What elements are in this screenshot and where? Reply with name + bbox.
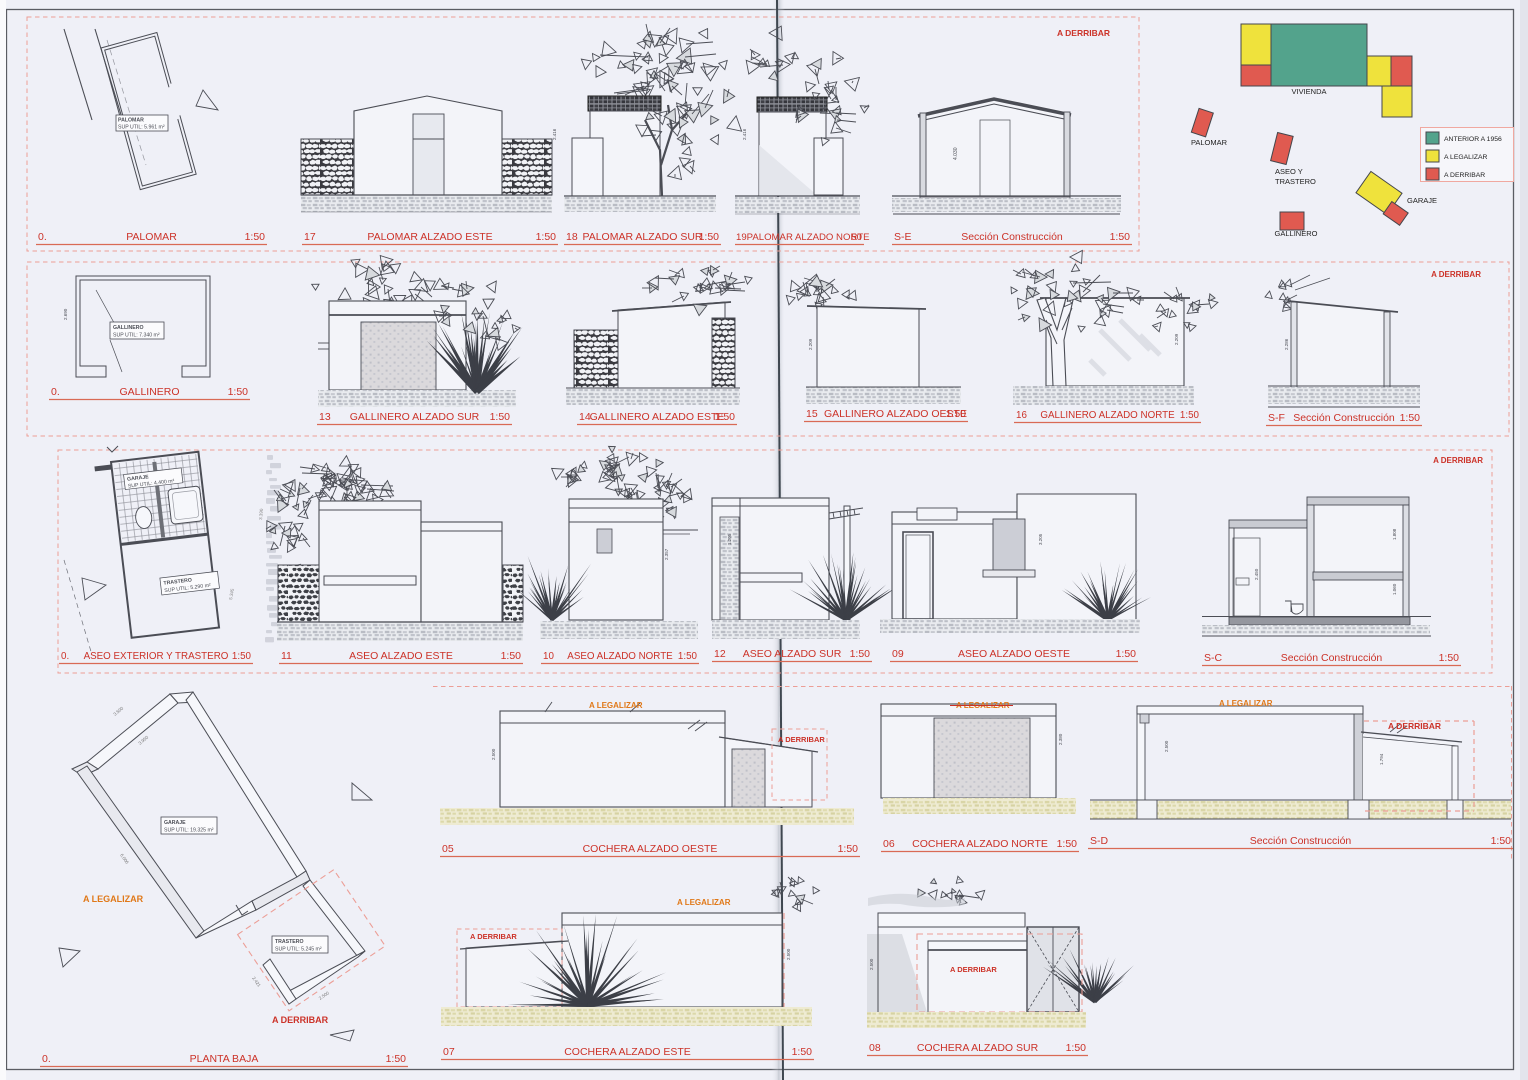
svg-text:12: 12 <box>714 648 726 660</box>
svg-text:COCHERA ALZADO OESTE: COCHERA ALZADO OESTE <box>583 843 718 855</box>
svg-text:GALLINERO ALZADO NORTE: GALLINERO ALZADO NORTE <box>1040 410 1175 421</box>
svg-text:07: 07 <box>443 1046 455 1058</box>
svg-text:1:50: 1:50 <box>946 408 967 420</box>
svg-text:15: 15 <box>806 408 818 420</box>
svg-text:A DERRIBAR: A DERRIBAR <box>950 965 997 974</box>
svg-text:PALOMAR ALZADO ESTE: PALOMAR ALZADO ESTE <box>367 231 492 243</box>
svg-text:08: 08 <box>869 1042 881 1054</box>
svg-text:PLANTA BAJA: PLANTA BAJA <box>190 1053 259 1065</box>
svg-text:1:50: 1:50 <box>1110 231 1131 243</box>
svg-text:13: 13 <box>319 411 331 423</box>
svg-text:1:50: 1:50 <box>228 386 249 398</box>
svg-text:GARAJE: GARAJE <box>1407 196 1437 205</box>
svg-text:4.030: 4.030 <box>953 147 959 160</box>
svg-text:S-C: S-C <box>1204 652 1223 664</box>
svg-text:Sección Construcción: Sección Construcción <box>1281 652 1383 664</box>
svg-text:A DERRIBAR: A DERRIBAR <box>1444 172 1485 179</box>
svg-text:ASEO ALZADO ESTE: ASEO ALZADO ESTE <box>349 650 453 662</box>
svg-text:1.794: 1.794 <box>1379 753 1384 765</box>
svg-text:SUP UTIL: 19.325 m²: SUP UTIL: 19.325 m² <box>164 828 214 834</box>
svg-text:0.: 0. <box>51 386 60 398</box>
svg-text:05: 05 <box>442 843 454 855</box>
svg-text:1:50: 1:50 <box>715 411 736 423</box>
svg-text:1:50: 1:50 <box>792 1046 813 1058</box>
svg-text:GALLINERO: GALLINERO <box>1275 229 1318 238</box>
svg-text:A DERRIBAR: A DERRIBAR <box>1433 456 1483 465</box>
svg-text:A DERRIBAR: A DERRIBAR <box>1388 721 1441 731</box>
svg-text:A DERRIBAR: A DERRIBAR <box>1057 28 1110 38</box>
svg-text:3.205: 3.205 <box>1038 533 1043 545</box>
svg-text:0.: 0. <box>38 231 47 243</box>
svg-text:COCHERA ALZADO ESTE: COCHERA ALZADO ESTE <box>564 1046 691 1058</box>
svg-text:1:50: 1:50 <box>386 1053 407 1065</box>
svg-text:GALLINERO ALZADO SUR: GALLINERO ALZADO SUR <box>350 411 480 423</box>
svg-text:GALLINERO: GALLINERO <box>119 386 179 398</box>
svg-text:2.500: 2.500 <box>491 748 496 760</box>
svg-text:A LEGALIZAR: A LEGALIZAR <box>1219 699 1273 708</box>
svg-text:ASEO EXTERIOR Y TRASTERO: ASEO EXTERIOR Y TRASTERO <box>84 651 229 662</box>
svg-text:ASEO ALZADO OESTE: ASEO ALZADO OESTE <box>958 648 1070 660</box>
svg-text:2.690: 2.690 <box>63 308 68 320</box>
svg-text:A DERRIBAR: A DERRIBAR <box>1431 270 1481 279</box>
svg-text:1:50: 1:50 <box>232 651 252 662</box>
svg-text:S-F: S-F <box>1268 412 1285 424</box>
svg-text:2.357: 2.357 <box>664 548 669 560</box>
svg-text:1:50: 1:50 <box>1439 652 1460 664</box>
svg-text:1:50: 1:50 <box>1180 410 1200 421</box>
svg-text:S-E: S-E <box>894 231 912 243</box>
svg-text:1:50: 1:50 <box>1400 412 1421 424</box>
svg-text:16: 16 <box>1016 410 1027 421</box>
svg-text:2.500: 2.500 <box>869 958 874 970</box>
svg-text:Sección Construcción: Sección Construcción <box>1250 835 1352 847</box>
svg-text:0.: 0. <box>42 1053 51 1065</box>
svg-text:2.416: 2.416 <box>742 128 747 140</box>
svg-text:1.060: 1.060 <box>1392 583 1397 595</box>
svg-text:19PALOMAR ALZADO NORTE: 19PALOMAR ALZADO NORTE <box>736 232 869 243</box>
svg-text:2.450: 2.450 <box>1254 568 1259 580</box>
svg-text:1:50: 1:50 <box>699 231 720 243</box>
svg-text:SUP UTIL: 5.961 m²: SUP UTIL: 5.961 m² <box>118 125 165 131</box>
svg-text:06: 06 <box>883 838 895 850</box>
svg-text:1:50: 1:50 <box>1491 835 1512 847</box>
svg-text:2.209: 2.209 <box>1174 333 1179 345</box>
svg-text:SUP UTIL: 7.340 m²: SUP UTIL: 7.340 m² <box>113 333 160 339</box>
svg-text:S-D: S-D <box>1090 835 1109 847</box>
svg-text:ASEO Y: ASEO Y <box>1275 167 1303 176</box>
svg-text:2.380: 2.380 <box>1058 733 1063 745</box>
svg-text:1:50: 1:50 <box>536 231 557 243</box>
svg-text:SUP UTIL: 5.245 m²: SUP UTIL: 5.245 m² <box>275 947 322 953</box>
svg-text:ANTERIOR A 1956: ANTERIOR A 1956 <box>1444 136 1502 143</box>
svg-text:PALOMAR: PALOMAR <box>118 118 144 124</box>
svg-text:1:50: 1:50 <box>501 650 522 662</box>
svg-text:A DERRIBAR: A DERRIBAR <box>778 735 825 744</box>
svg-text:1:50: 1:50 <box>490 411 511 423</box>
svg-text:10: 10 <box>543 651 554 662</box>
svg-text:A LEGALIZAR: A LEGALIZAR <box>677 898 731 907</box>
svg-text:1:50: 1:50 <box>850 648 871 660</box>
svg-text:ASEO ALZADO NORTE: ASEO ALZADO NORTE <box>567 651 673 662</box>
svg-text:1:50: 1:50 <box>1066 1042 1087 1054</box>
svg-text:18: 18 <box>566 231 578 243</box>
svg-text:A LEGALIZAR: A LEGALIZAR <box>589 701 643 710</box>
svg-text:A DERRIBAR: A DERRIBAR <box>470 932 517 941</box>
svg-text:09: 09 <box>892 648 904 660</box>
svg-text:PALOMAR: PALOMAR <box>126 231 177 243</box>
svg-text:17: 17 <box>304 231 316 243</box>
svg-text:2.286: 2.286 <box>1284 338 1289 350</box>
svg-text:11: 11 <box>281 650 292 662</box>
svg-text:Sección Construcción: Sección Construcción <box>1293 412 1395 424</box>
svg-text:0.: 0. <box>61 651 69 662</box>
svg-text:2.209: 2.209 <box>808 338 813 350</box>
svg-text:3.390: 3.390 <box>258 508 264 520</box>
svg-text:GARAJE: GARAJE <box>164 820 186 826</box>
svg-text:COCHERA ALZADO NORTE: COCHERA ALZADO NORTE <box>912 838 1048 850</box>
svg-text:2.416: 2.416 <box>552 128 557 140</box>
svg-text:1:50: 1:50 <box>245 231 266 243</box>
svg-text:1:50: 1:50 <box>678 651 698 662</box>
svg-text:Sección Construcción: Sección Construcción <box>961 231 1063 243</box>
svg-text:2.500: 2.500 <box>786 948 791 960</box>
svg-text:1:50: 1:50 <box>838 843 859 855</box>
svg-text:ASEO ALZADO SUR: ASEO ALZADO SUR <box>743 648 842 660</box>
svg-text:TRASTERO: TRASTERO <box>1275 177 1316 186</box>
svg-text:2.500: 2.500 <box>1164 740 1169 752</box>
svg-text:1:50: 1:50 <box>1057 838 1078 850</box>
svg-text:GALLINERO: GALLINERO <box>113 325 144 331</box>
svg-text:A LEGALIZAR: A LEGALIZAR <box>1444 154 1488 161</box>
svg-text:50: 50 <box>851 232 862 243</box>
svg-text:PALOMAR: PALOMAR <box>1191 138 1228 147</box>
svg-text:VIVIENDA: VIVIENDA <box>1291 87 1326 96</box>
svg-text:1.808: 1.808 <box>1392 528 1397 540</box>
svg-text:TRASTERO: TRASTERO <box>275 939 304 945</box>
svg-text:A DERRIBAR: A DERRIBAR <box>272 1015 329 1025</box>
svg-text:COCHERA ALZADO SUR: COCHERA ALZADO SUR <box>917 1042 1039 1054</box>
svg-text:PALOMAR ALZADO SUR: PALOMAR ALZADO SUR <box>582 231 702 243</box>
svg-text:1.205: 1.205 <box>727 533 732 545</box>
svg-text:GALLINERO ALZADO ESTE: GALLINERO ALZADO ESTE <box>590 411 725 423</box>
svg-text:A LEGALIZAR: A LEGALIZAR <box>83 894 144 904</box>
svg-text:1:50: 1:50 <box>1116 648 1137 660</box>
